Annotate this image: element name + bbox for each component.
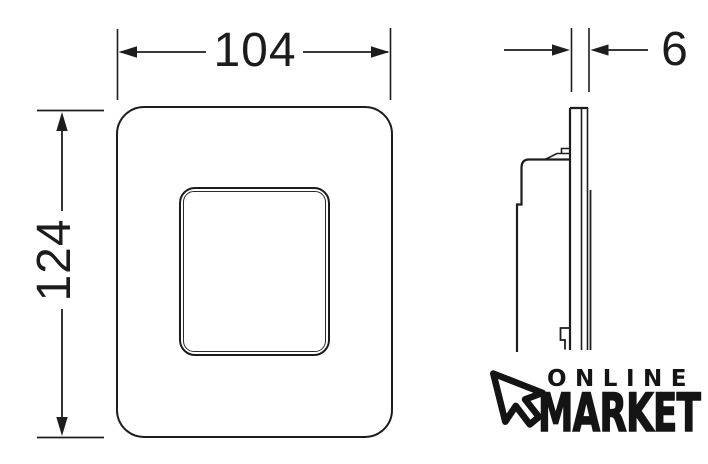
- technical-drawing-canvas: 104 124 6 ONLINE MARKET: [0, 0, 708, 464]
- dimension-height-label: 124: [31, 218, 79, 301]
- dimension-depth-lines: [504, 28, 648, 92]
- online-market-logo: ONLINE MARKET: [488, 352, 708, 456]
- arrowhead-down-icon: [56, 417, 67, 436]
- arrowhead-left-icon: [119, 46, 138, 57]
- logo-text-market: MARKET: [538, 383, 700, 444]
- dimension-width-label: 104: [213, 27, 296, 75]
- arrowhead-up-icon: [56, 112, 67, 131]
- arrowhead-right-icon: [371, 46, 390, 57]
- arrowhead-left-icon: [591, 44, 609, 55]
- dimension-depth-label: 6: [661, 26, 689, 74]
- side-view-profile: [517, 108, 591, 352]
- arrowhead-right-icon: [552, 44, 570, 55]
